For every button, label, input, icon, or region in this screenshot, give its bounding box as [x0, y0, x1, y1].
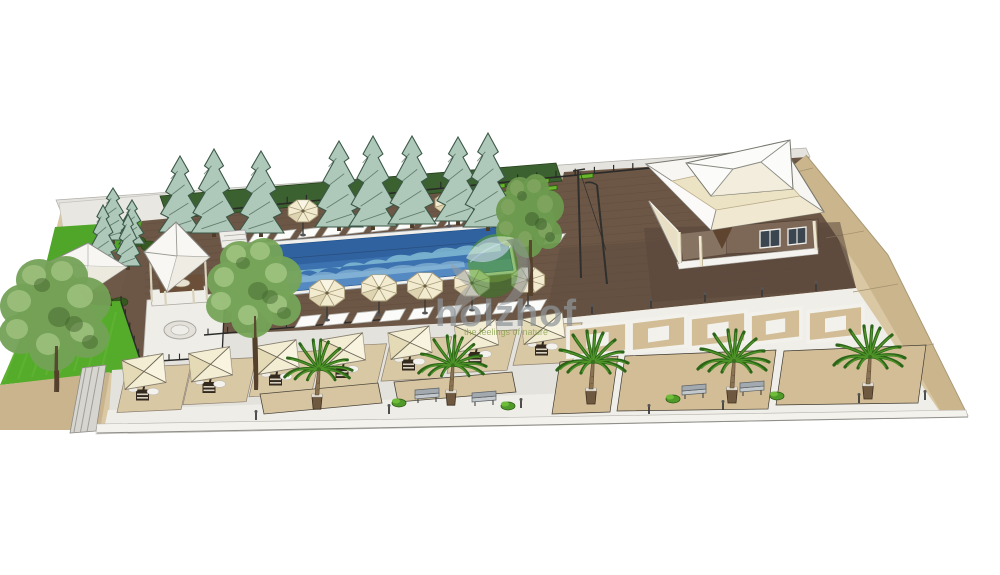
svg-text:the feelings of nature: the feelings of nature [464, 327, 548, 337]
